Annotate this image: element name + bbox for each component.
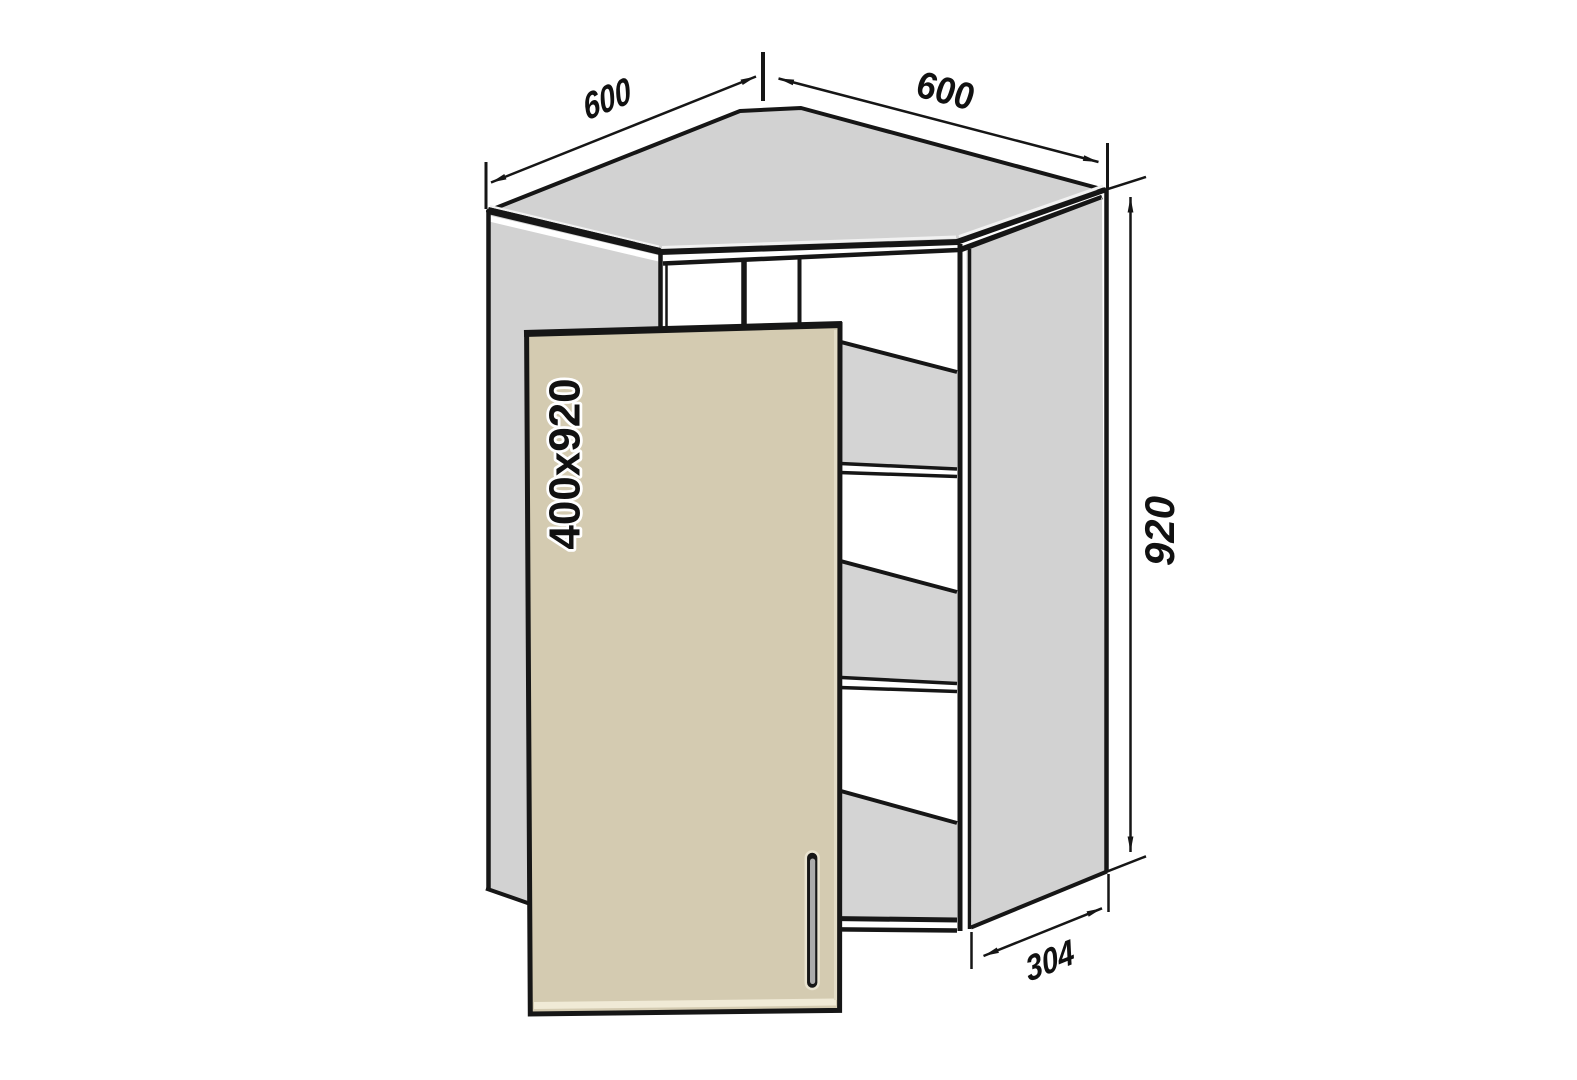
svg-text:400x920: 400x920 bbox=[541, 378, 590, 549]
svg-text:920: 920 bbox=[1136, 496, 1183, 566]
